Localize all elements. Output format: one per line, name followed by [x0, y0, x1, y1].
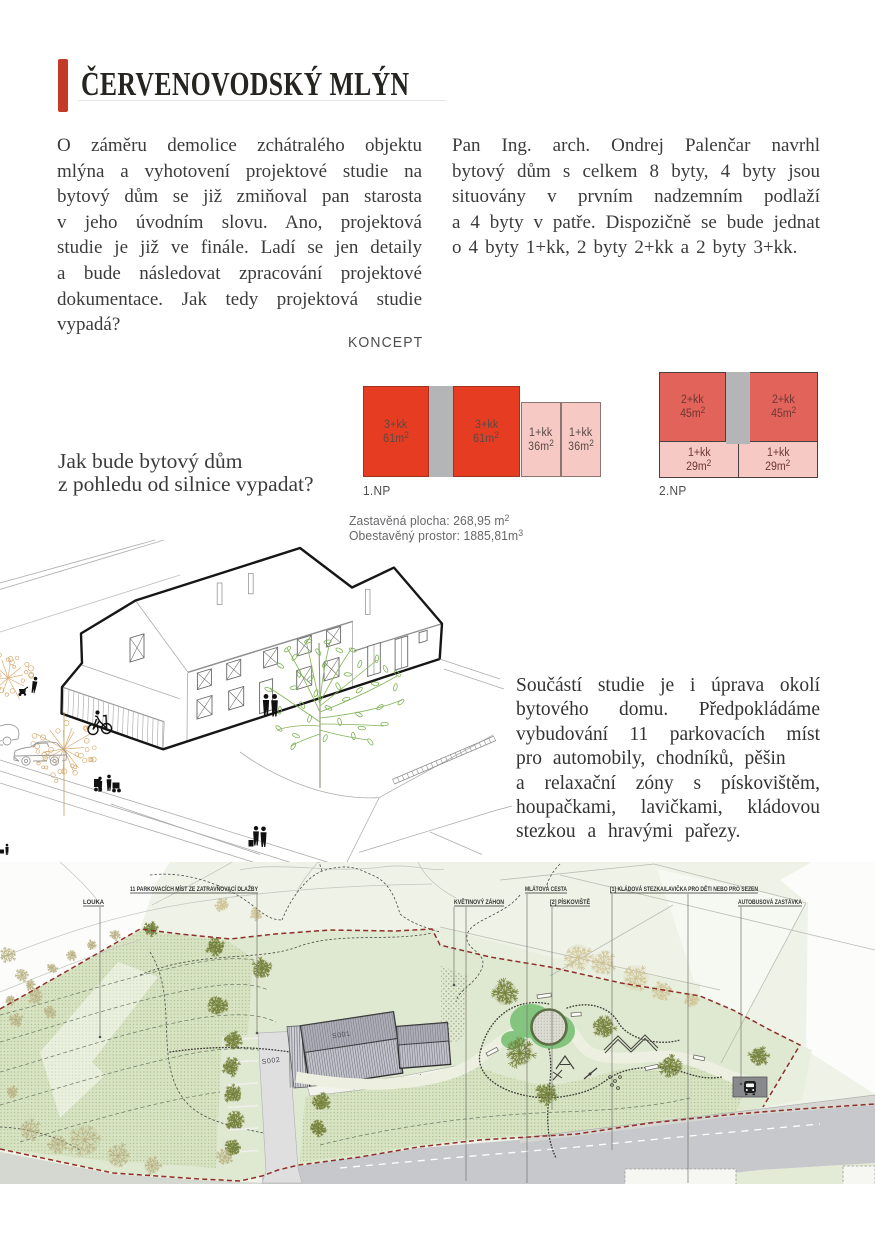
svg-text:[1] KLÁDOVÁ STEZKA/LAVIČKA PRO: [1] KLÁDOVÁ STEZKA/LAVIČKA PRO DĚTI NEBO…	[610, 884, 758, 893]
svg-text:[2] PÍSKOVIŠTĚ: [2] PÍSKOVIŠTĚ	[550, 897, 591, 906]
svg-text:11 PARKOVACÍCH MÍST ZE ZATRAVŇ: 11 PARKOVACÍCH MÍST ZE ZATRAVŇOVACÍ DLAŽ…	[130, 884, 259, 893]
svg-text:KVĚTINOVÝ ZÁHON: KVĚTINOVÝ ZÁHON	[454, 897, 504, 906]
svg-text:AUTOBUSOVÁ ZASTÁVKA: AUTOBUSOVÁ ZASTÁVKA	[738, 897, 802, 906]
svg-text:MLÁTOVÁ CESTA: MLÁTOVÁ CESTA	[525, 884, 567, 893]
svg-text:LOUKA: LOUKA	[83, 899, 104, 906]
